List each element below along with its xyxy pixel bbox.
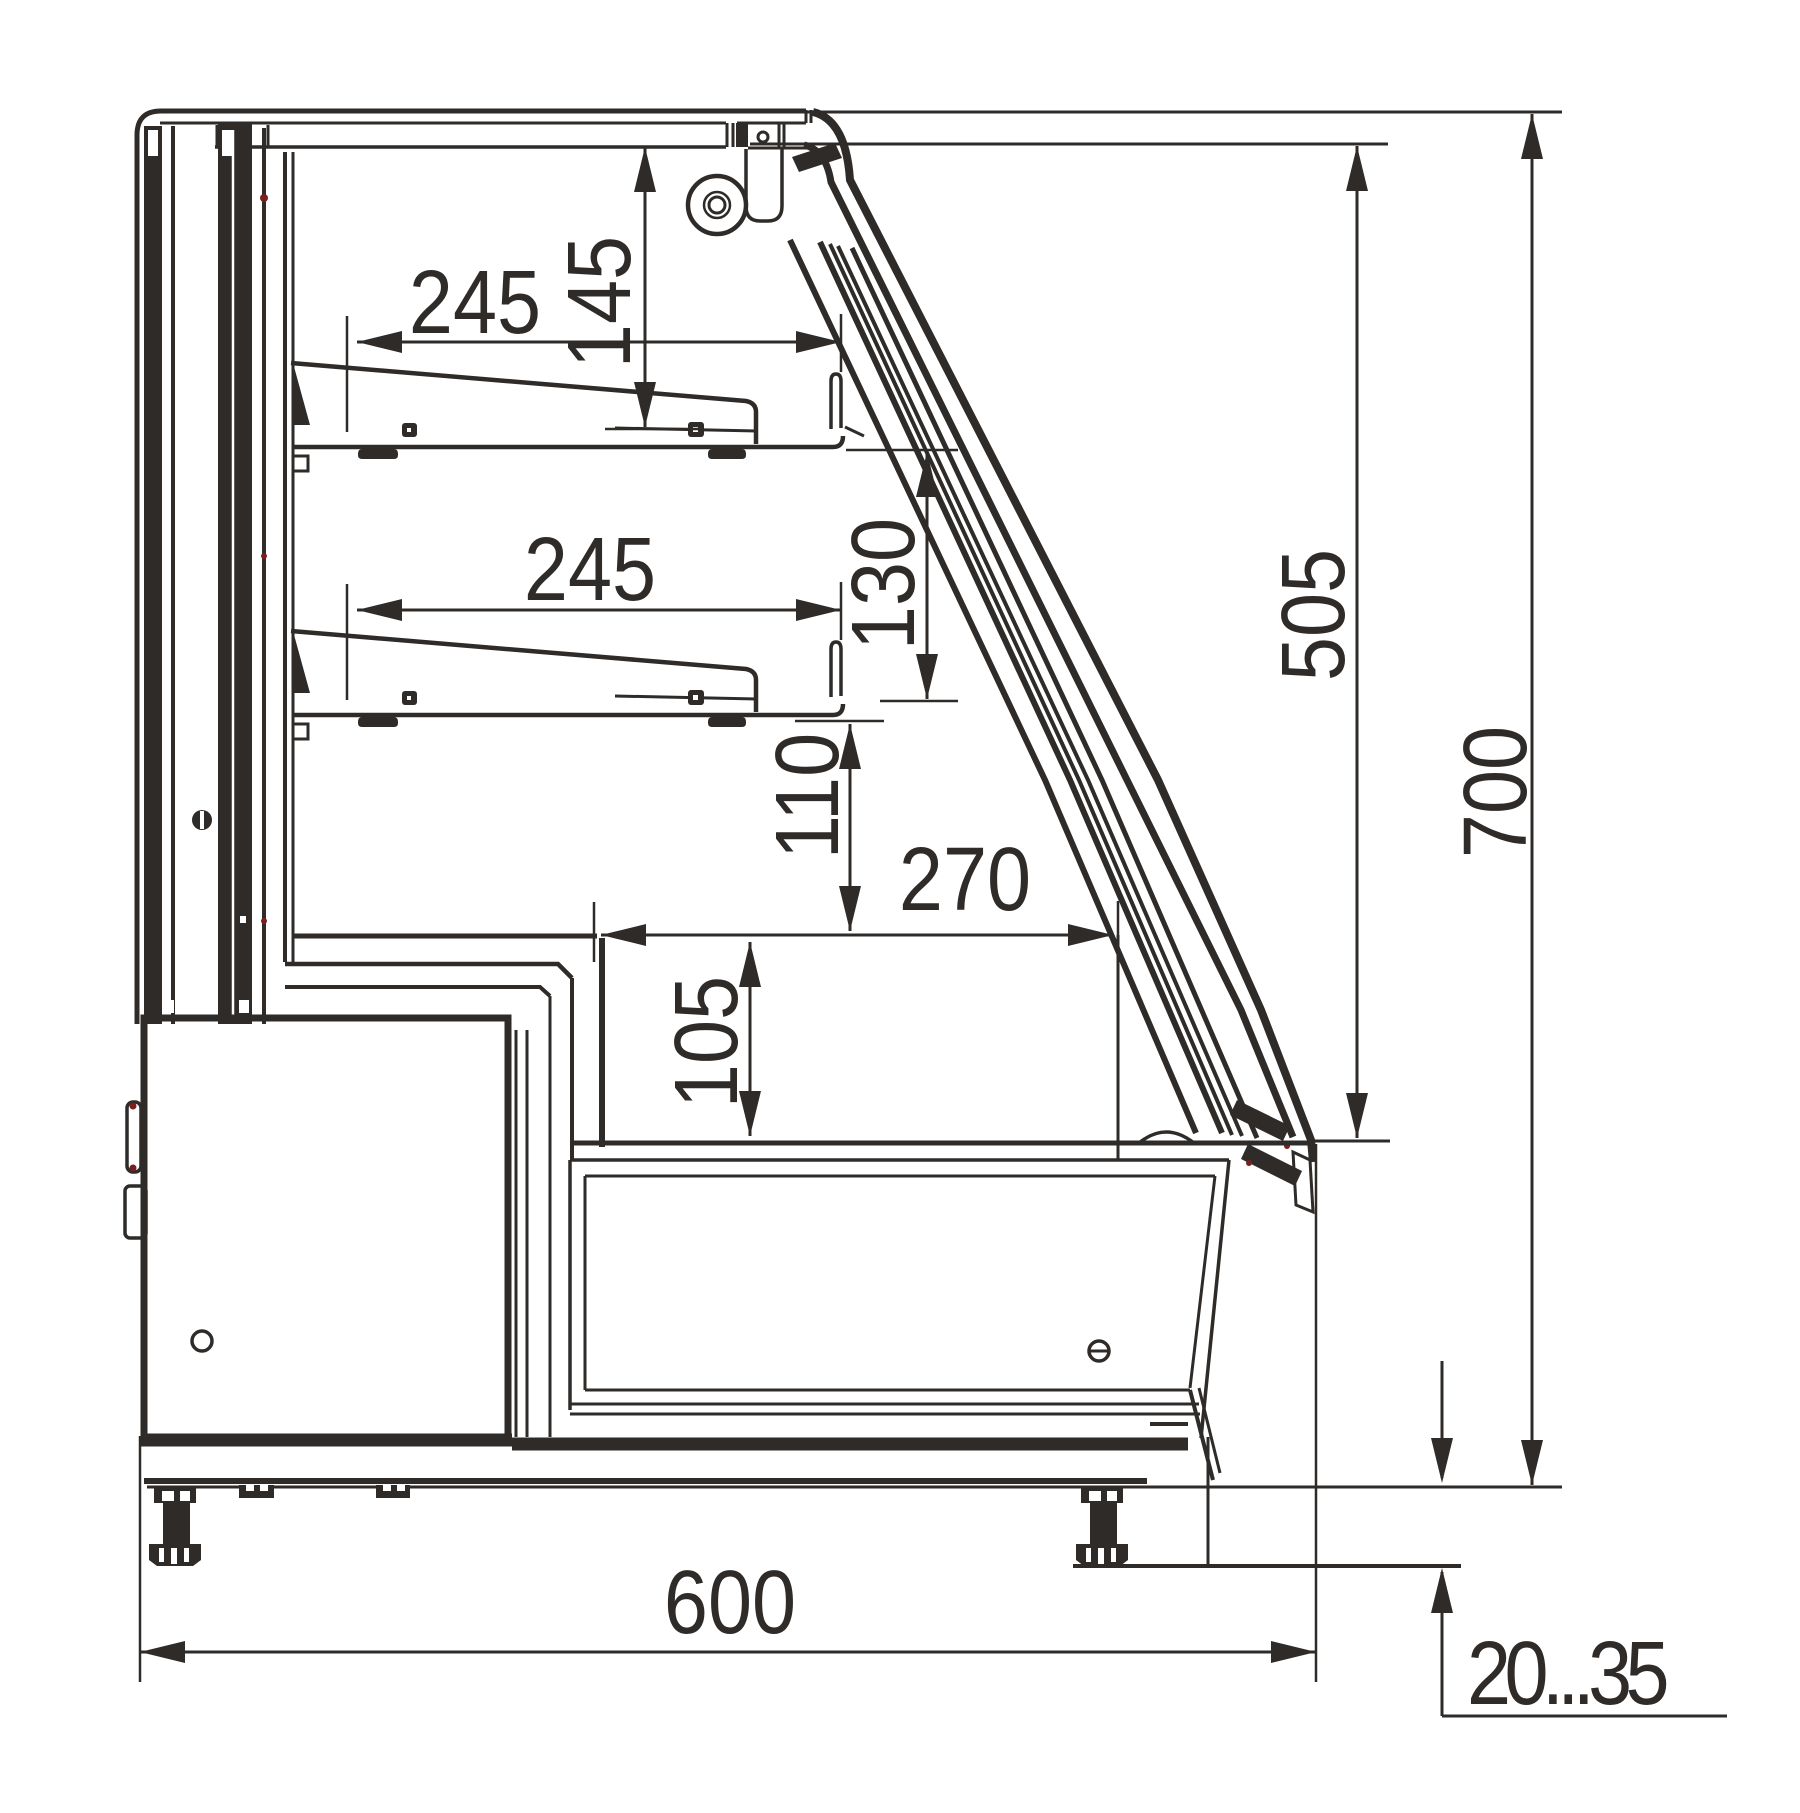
svg-text:245: 245: [524, 518, 656, 619]
svg-text:20...35: 20...35: [1467, 1622, 1667, 1723]
svg-text:130: 130: [832, 518, 933, 650]
svg-text:245: 245: [409, 251, 541, 352]
svg-text:105: 105: [655, 976, 756, 1108]
svg-text:700: 700: [1444, 726, 1545, 858]
svg-text:505: 505: [1262, 549, 1363, 681]
svg-text:145: 145: [548, 236, 649, 368]
svg-text:600: 600: [664, 1551, 796, 1652]
svg-text:270: 270: [899, 828, 1031, 929]
svg-text:110: 110: [756, 733, 857, 859]
